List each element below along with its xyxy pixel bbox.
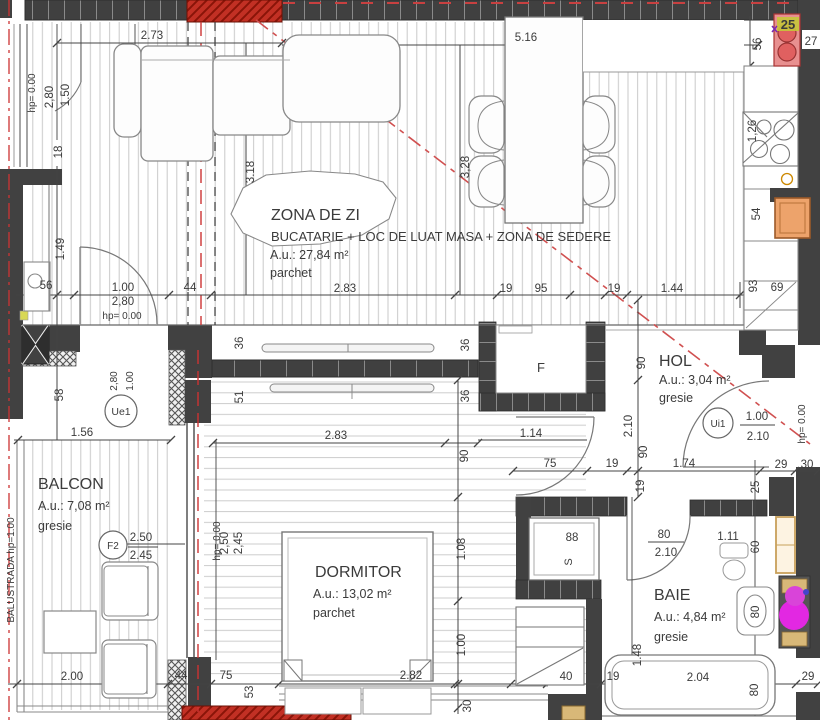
svg-text:1.49: 1.49 (55, 238, 67, 260)
svg-text:hp= 0.00: hp= 0.00 (27, 73, 38, 113)
svg-text:90: 90 (459, 450, 471, 463)
svg-text:25: 25 (750, 481, 762, 494)
svg-text:1,26: 1,26 (747, 120, 759, 142)
svg-text:1.00: 1.00 (125, 371, 136, 391)
svg-text:2.82: 2.82 (400, 670, 422, 682)
svg-text:F: F (537, 360, 545, 375)
svg-text:80: 80 (750, 606, 762, 619)
svg-text:2,80: 2,80 (112, 296, 134, 308)
svg-text:2,45: 2,45 (233, 532, 245, 554)
svg-text:69: 69 (771, 282, 784, 294)
svg-text:36: 36 (234, 337, 246, 350)
svg-text:19: 19 (500, 283, 513, 295)
svg-text:A.u.: 4,84 m²: A.u.: 4,84 m² (654, 610, 726, 624)
svg-text:3,28: 3,28 (460, 156, 472, 178)
svg-text:2.10: 2.10 (747, 431, 769, 443)
svg-text:gresie: gresie (659, 391, 693, 405)
svg-text:BALCON: BALCON (38, 476, 104, 493)
svg-text:54: 54 (751, 207, 763, 220)
svg-text:29: 29 (802, 671, 815, 683)
svg-text:53: 53 (244, 686, 256, 699)
svg-text:BUCATARIE + LOC DE LUAT MASA +: BUCATARIE + LOC DE LUAT MASA + ZONA DE S… (271, 229, 611, 244)
svg-text:2.73: 2.73 (141, 30, 163, 42)
svg-text:5.16: 5.16 (515, 32, 537, 44)
svg-text:93: 93 (748, 280, 760, 293)
svg-text:58: 58 (54, 389, 66, 402)
svg-text:75: 75 (544, 458, 557, 470)
svg-text:30: 30 (801, 459, 814, 471)
svg-text:ZONA DE ZI: ZONA DE ZI (271, 207, 360, 224)
svg-text:90: 90 (638, 446, 650, 459)
svg-text:hp= 0.00: hp= 0.00 (797, 404, 808, 444)
svg-text:44: 44 (184, 282, 197, 294)
svg-text:80: 80 (658, 529, 671, 541)
svg-text:19: 19 (606, 458, 619, 470)
svg-text:80: 80 (749, 684, 761, 697)
svg-text:A.u.: 7,08 m²: A.u.: 7,08 m² (38, 499, 110, 513)
svg-text:18: 18 (53, 146, 65, 159)
svg-text:75: 75 (220, 670, 233, 682)
svg-text:19: 19 (607, 671, 620, 683)
svg-text:F2: F2 (107, 541, 119, 552)
svg-text:parchet: parchet (270, 266, 312, 280)
svg-text:27: 27 (805, 36, 818, 48)
svg-text:1.00: 1.00 (746, 411, 768, 423)
svg-text:1.11: 1.11 (717, 531, 739, 543)
svg-text:51: 51 (234, 391, 246, 404)
svg-text:2.83: 2.83 (325, 430, 347, 442)
svg-text:DORMITOR: DORMITOR (315, 564, 402, 581)
svg-text:1.14: 1.14 (520, 428, 543, 440)
svg-text:1.00: 1.00 (456, 634, 468, 656)
svg-text:88: 88 (566, 532, 579, 544)
svg-text:parchet: parchet (313, 606, 355, 620)
svg-text:Ui1: Ui1 (710, 419, 725, 430)
svg-text:1.56: 1.56 (71, 427, 93, 439)
svg-text:25: 25 (781, 17, 795, 32)
svg-text:gresie: gresie (654, 630, 688, 644)
svg-text:hp= 0.00: hp= 0.00 (212, 521, 223, 561)
svg-text:1.48: 1.48 (632, 644, 644, 666)
svg-text:A.u.: 13,02 m²: A.u.: 13,02 m² (313, 587, 392, 601)
svg-text:30: 30 (462, 700, 474, 713)
svg-text:gresie: gresie (38, 519, 72, 533)
svg-text:29: 29 (775, 459, 788, 471)
svg-text:hp= 0.00: hp= 0.00 (102, 311, 142, 322)
svg-text:36: 36 (460, 390, 472, 403)
svg-text:44: 44 (175, 670, 188, 682)
svg-text:BAIE: BAIE (654, 587, 690, 604)
svg-text:2.10: 2.10 (623, 415, 635, 437)
svg-text:19: 19 (635, 480, 647, 493)
svg-text:1.74: 1.74 (673, 458, 696, 470)
svg-text:A.u.: 3,04 m²: A.u.: 3,04 m² (659, 373, 731, 387)
svg-text:60: 60 (750, 541, 762, 554)
svg-text:A.u.: 27,84 m²: A.u.: 27,84 m² (270, 248, 349, 262)
svg-text:1.44: 1.44 (661, 283, 684, 295)
svg-text:1.00: 1.00 (112, 282, 134, 294)
svg-text:2.00: 2.00 (61, 671, 83, 683)
svg-text:90: 90 (636, 357, 648, 370)
svg-text:Ue1: Ue1 (111, 406, 130, 418)
svg-text:2,80: 2,80 (44, 86, 56, 108)
svg-text:2,80: 2,80 (109, 371, 120, 391)
svg-text:95: 95 (535, 283, 548, 295)
svg-text:19: 19 (608, 283, 621, 295)
svg-text:36: 36 (460, 339, 472, 352)
svg-text:1.08: 1.08 (456, 538, 468, 560)
svg-text:1.50: 1.50 (60, 84, 72, 106)
svg-text:2.83: 2.83 (334, 283, 356, 295)
svg-text:S: S (563, 558, 575, 565)
svg-text:2.10: 2.10 (655, 547, 677, 559)
svg-text:40: 40 (560, 671, 573, 683)
svg-text:3.18: 3.18 (245, 161, 257, 183)
svg-text:56: 56 (40, 280, 53, 292)
svg-text:56: 56 (752, 38, 764, 51)
svg-text:HOL: HOL (659, 353, 692, 370)
svg-text:2.50: 2.50 (130, 532, 152, 544)
svg-text:2.04: 2.04 (687, 672, 710, 684)
svg-text:2.45: 2.45 (130, 550, 152, 562)
svg-text:BALUSTRADA hp=1.00: BALUSTRADA hp=1.00 (6, 517, 17, 623)
